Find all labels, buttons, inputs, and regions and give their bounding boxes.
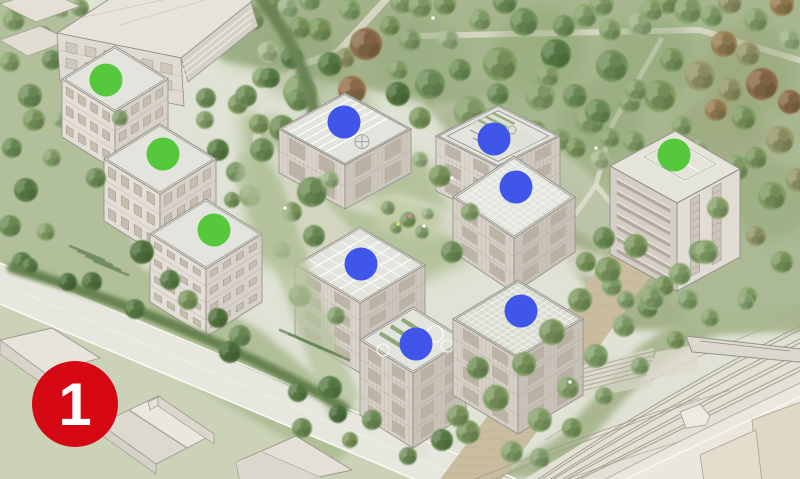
svg-text:1: 1 <box>58 371 91 438</box>
